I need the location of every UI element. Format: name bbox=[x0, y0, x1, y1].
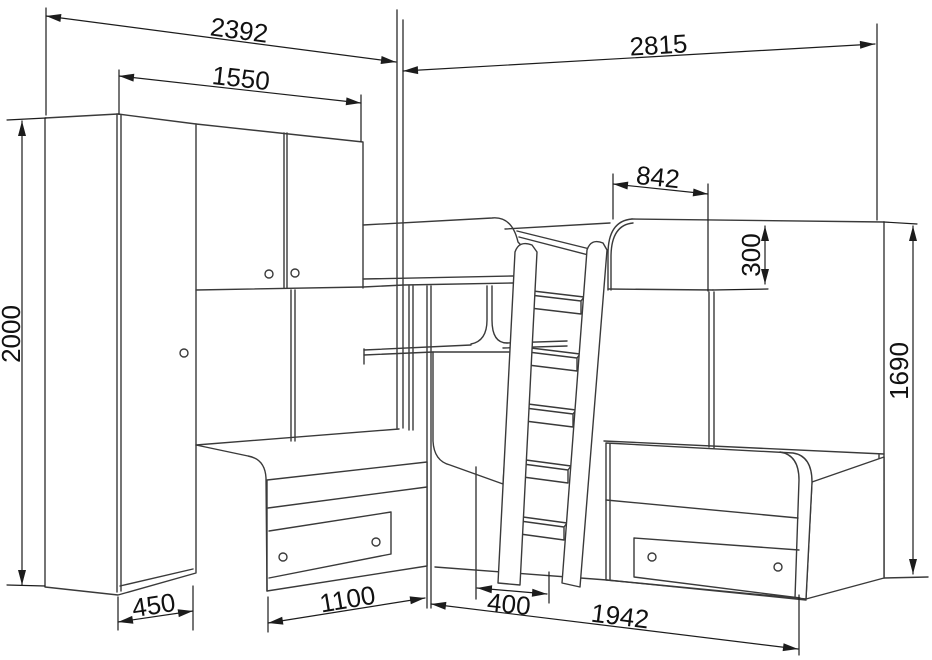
dim-label-400: 400 bbox=[486, 587, 532, 621]
blueprint-page: 2392 1550 2815 842 300 1690 2000 450 110… bbox=[0, 0, 932, 660]
dim-label-842: 842 bbox=[635, 160, 681, 194]
guard-panel bbox=[433, 352, 512, 484]
cabinet-right-handle bbox=[291, 269, 299, 277]
dim-label-300: 300 bbox=[736, 233, 766, 276]
right-drawer-handle-2 bbox=[774, 563, 782, 571]
furniture-linework bbox=[45, 10, 928, 608]
wardrobe-door-handle bbox=[180, 349, 188, 357]
dim-label-450: 450 bbox=[130, 587, 177, 623]
dim-label-1100: 1100 bbox=[317, 580, 377, 619]
left-bed bbox=[196, 445, 427, 591]
dim-label-2815: 2815 bbox=[629, 28, 688, 61]
dim-label-1942: 1942 bbox=[590, 598, 651, 635]
ladder bbox=[498, 242, 607, 587]
right-drawer-handle-1 bbox=[648, 553, 656, 561]
dim-label-1550: 1550 bbox=[211, 60, 272, 96]
dim-label-2392: 2392 bbox=[209, 11, 270, 48]
dim-label-1690: 1690 bbox=[884, 342, 914, 400]
wardrobe bbox=[45, 114, 196, 595]
cabinet-left-handle bbox=[265, 270, 273, 278]
upper-cabinet bbox=[196, 124, 513, 290]
dim-label-2000: 2000 bbox=[0, 305, 26, 363]
right-bed bbox=[604, 441, 884, 599]
left-drawer-handle-2 bbox=[372, 538, 380, 546]
left-drawer-handle-1 bbox=[279, 553, 287, 561]
upper-bunk bbox=[363, 218, 884, 290]
furniture-technical-drawing: 2392 1550 2815 842 300 1690 2000 450 110… bbox=[0, 0, 932, 660]
